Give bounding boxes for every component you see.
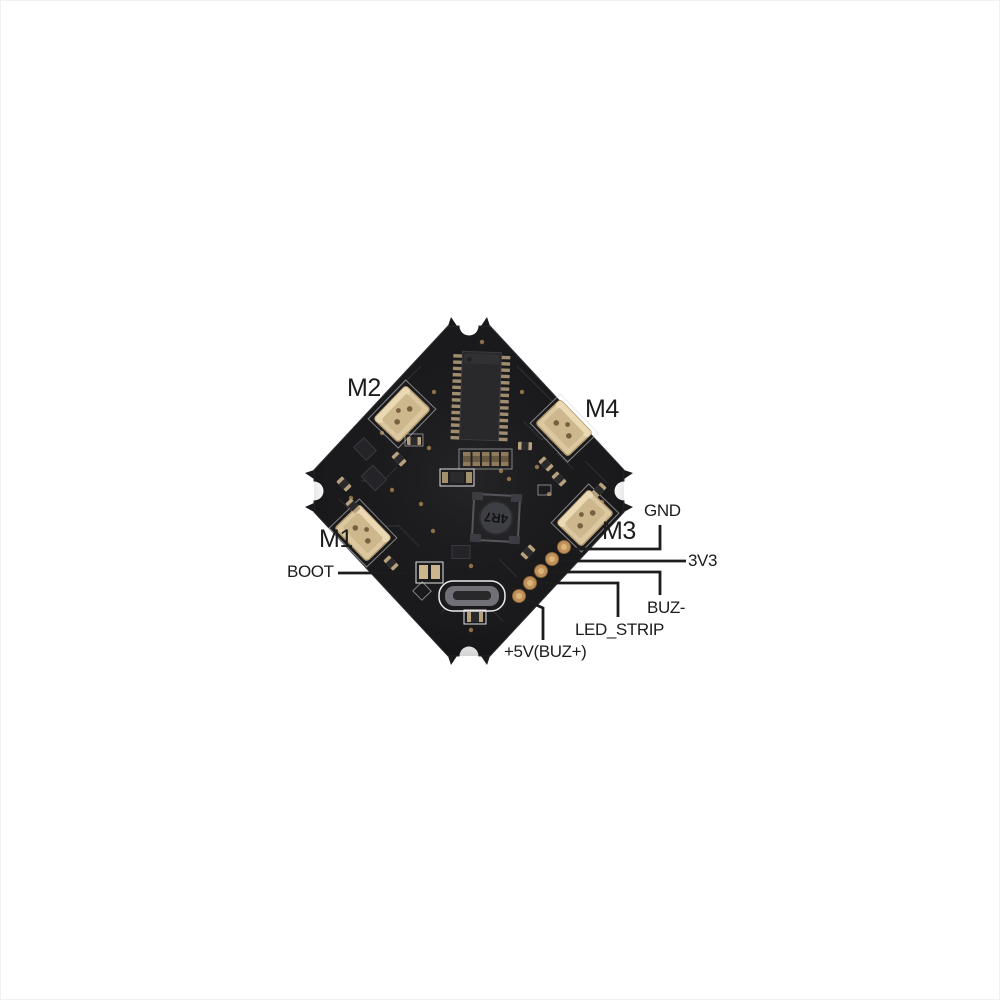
flight-controller-board-graphic: 4R7 xyxy=(1,1,1000,1000)
pinout-diagram: 4R7 xyxy=(0,0,1000,1000)
label-m3: M3 xyxy=(602,519,636,544)
label-gnd: GND xyxy=(644,502,681,519)
inductor-marking: 4R7 xyxy=(483,509,508,526)
smd-below-usb xyxy=(464,610,486,624)
label-m4: M4 xyxy=(585,397,619,422)
usb-connector xyxy=(439,581,505,611)
label-m2: M2 xyxy=(347,376,381,401)
label-buz-minus: BUZ- xyxy=(647,599,685,616)
label-boot: BOOT xyxy=(287,563,334,580)
label-5v-buz-plus: +5V(BUZ+) xyxy=(504,643,586,660)
power-inductor: 4R7 xyxy=(470,492,523,545)
capacitor-row xyxy=(459,449,512,469)
label-3v3: 3V3 xyxy=(688,552,717,569)
label-m1: M1 xyxy=(319,527,353,552)
regulator-component xyxy=(440,469,474,486)
ic-body xyxy=(459,351,501,440)
label-led-strip: LED_STRIP xyxy=(575,621,664,638)
